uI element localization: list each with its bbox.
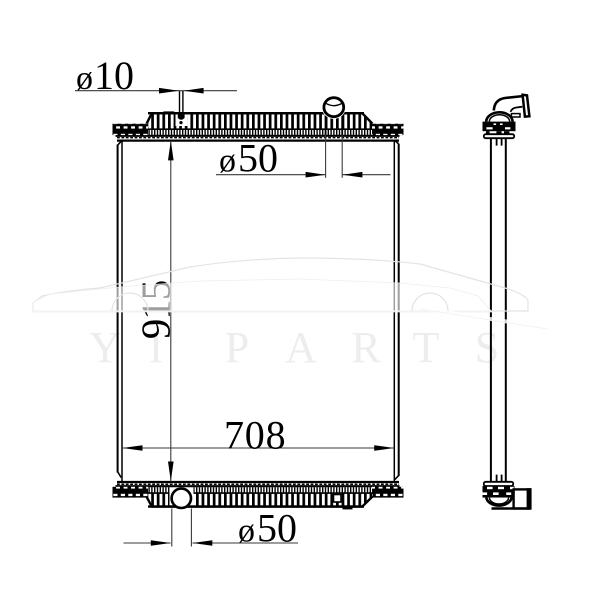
svg-text:Y: Y bbox=[89, 323, 121, 372]
svg-text:ø10: ø10 bbox=[76, 53, 134, 98]
svg-text:P: P bbox=[225, 323, 249, 372]
svg-text:A: A bbox=[285, 323, 317, 372]
svg-text:ø50: ø50 bbox=[219, 136, 278, 181]
svg-text:S: S bbox=[475, 323, 499, 372]
svg-text:R: R bbox=[351, 323, 381, 372]
svg-text:708: 708 bbox=[224, 413, 286, 458]
svg-text:T: T bbox=[413, 323, 440, 372]
svg-text:ø50: ø50 bbox=[238, 506, 297, 551]
